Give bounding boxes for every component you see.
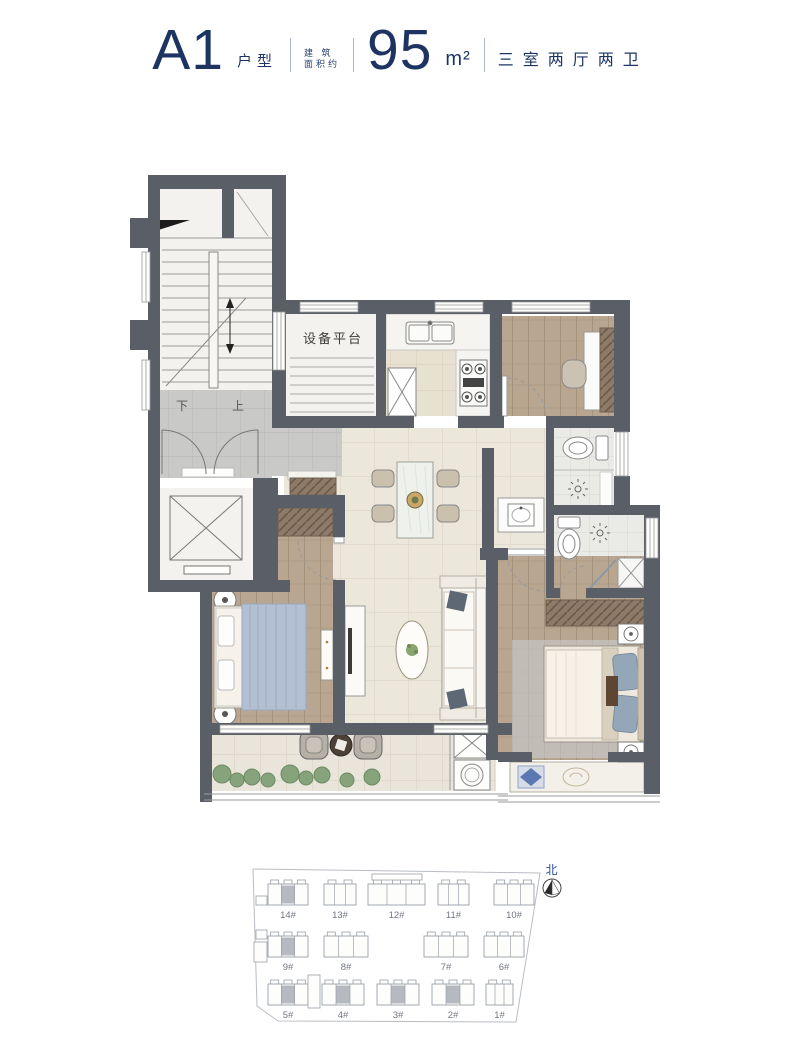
site-building-11: 11# <box>438 880 469 921</box>
dresser <box>321 630 333 680</box>
header-divider <box>353 38 354 72</box>
stairs-up-label: 上 <box>232 399 244 413</box>
sofa-arm <box>440 708 488 720</box>
site-building-label: 2# <box>448 1010 459 1021</box>
area-prefix: 建 筑 面积约 <box>304 48 340 75</box>
site-building-label: 6# <box>499 962 510 973</box>
equipment-platform-label: 设备平台 <box>303 331 363 346</box>
desk-chair <box>562 360 586 388</box>
study-door-leaf <box>502 376 507 416</box>
stove-icon <box>460 360 487 406</box>
header-divider <box>290 38 291 72</box>
window <box>435 302 483 312</box>
bookshelf <box>600 328 616 412</box>
site-building-8: 8# <box>324 932 368 973</box>
stairs-down-label: 下 <box>176 399 188 413</box>
site-building-12: 12# <box>368 880 425 921</box>
window <box>220 725 310 733</box>
bed-runner <box>606 676 618 706</box>
site-building-label: 8# <box>341 962 352 973</box>
bedroom2-door-leaf <box>334 537 344 543</box>
site-building-9: 9# <box>268 932 308 973</box>
site-plan: 14#13#12#11#10#9#8#7#6#5#4#3#2#1# 北 <box>235 855 575 1040</box>
fridge-icon <box>388 368 416 416</box>
window <box>616 432 628 476</box>
window <box>142 360 150 410</box>
site-building-6: 6# <box>484 932 524 973</box>
north-label: 北 <box>545 863 558 877</box>
wardrobe <box>546 600 644 626</box>
site-building-label: 4# <box>338 1010 349 1021</box>
toilet-icon <box>558 517 580 559</box>
dining-chair <box>372 505 394 522</box>
window <box>300 302 358 312</box>
floor-plan: 下 上 设备平台 <box>125 165 685 815</box>
site-building-14: 14# <box>268 880 308 921</box>
site-building-label: 1# <box>494 1010 505 1021</box>
area-value: 95 <box>367 26 432 74</box>
sofa <box>440 576 488 720</box>
site-building-2: 2# <box>432 980 474 1021</box>
wardrobe <box>278 508 333 536</box>
site-building-label: 12# <box>389 910 406 921</box>
site-building-label: 14# <box>280 910 297 921</box>
site-building-5: 5# <box>268 980 308 1021</box>
site-building-3: 3# <box>377 980 419 1021</box>
area-unit: m² <box>445 48 470 74</box>
site-building-4: 4# <box>322 980 364 1021</box>
tv-cabinet <box>345 606 365 696</box>
sofa-cushion <box>444 630 474 668</box>
site-building-1: 1# <box>486 980 513 1021</box>
nightstand <box>618 624 644 644</box>
window <box>512 302 590 312</box>
shoe-cabinet <box>290 478 336 495</box>
site-building-label: 5# <box>283 1010 294 1021</box>
dining-chair <box>437 505 459 522</box>
window <box>142 252 150 302</box>
compass-icon <box>543 879 561 897</box>
toilet-icon <box>563 436 608 460</box>
window <box>646 518 658 558</box>
site-building-label: 11# <box>446 910 462 921</box>
site-building-label: 7# <box>441 962 452 973</box>
dining-chair <box>437 470 459 487</box>
window <box>273 312 285 370</box>
throw-pillow <box>446 590 467 611</box>
vanity <box>498 498 544 532</box>
rooms-summary: 三室两厅两卫 <box>498 46 648 74</box>
site-building-label: 13# <box>332 910 349 921</box>
site-building-label: 9# <box>283 962 294 973</box>
unit-code: A1 <box>152 26 224 74</box>
pillow <box>218 616 234 646</box>
header-divider <box>484 38 485 72</box>
site-building-label: 10# <box>506 910 523 921</box>
dining-chair <box>372 470 394 487</box>
sofa-arm <box>440 576 488 588</box>
site-building-label: 3# <box>393 1010 404 1021</box>
site-building-10: 10# <box>494 880 534 921</box>
site-building-13: 13# <box>324 880 356 921</box>
kitchen-sink-icon <box>406 321 454 344</box>
plan-header: A1 户型 建 筑 面积约 95 m² 三室两厅两卫 <box>0 26 800 74</box>
coffee-table <box>396 621 428 679</box>
unit-type-label: 户型 <box>237 50 277 74</box>
throw-pillow <box>446 688 467 709</box>
master-door-leaf <box>507 549 545 555</box>
site-building-7: 7# <box>424 932 468 973</box>
pillow <box>218 660 234 690</box>
entry-floor <box>272 428 342 476</box>
tv-icon <box>348 628 352 674</box>
equipment-platform-floor <box>286 314 376 416</box>
railings <box>204 794 660 802</box>
window <box>434 725 488 733</box>
